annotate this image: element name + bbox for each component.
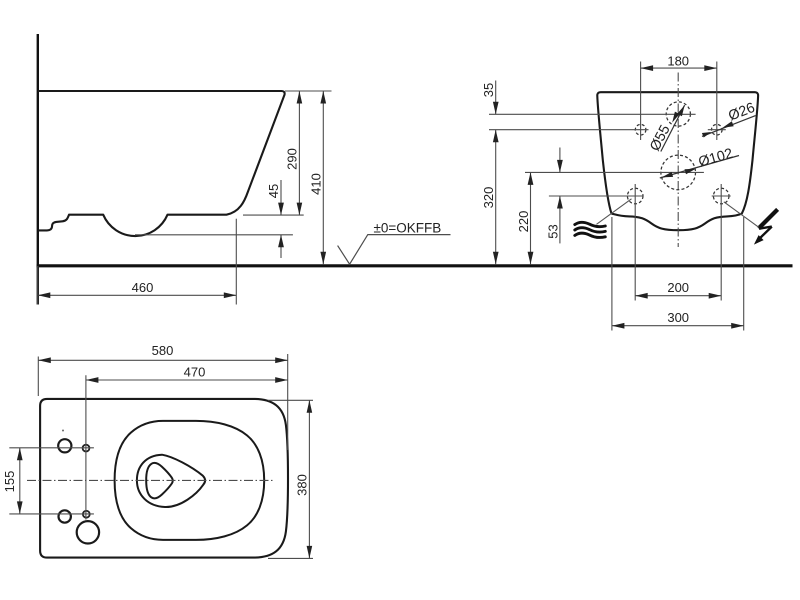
svg-text:410: 410 xyxy=(309,173,324,195)
svg-text:470: 470 xyxy=(184,365,206,380)
svg-text:220: 220 xyxy=(516,211,531,233)
svg-text:45: 45 xyxy=(266,184,281,198)
svg-text:200: 200 xyxy=(667,280,689,295)
svg-text:290: 290 xyxy=(285,148,300,170)
svg-text:±0=OKFFB: ±0=OKFFB xyxy=(374,221,442,236)
svg-text:580: 580 xyxy=(152,343,174,358)
svg-text:380: 380 xyxy=(295,474,310,496)
svg-text:320: 320 xyxy=(481,187,496,209)
svg-text:35: 35 xyxy=(481,83,496,97)
svg-text:180: 180 xyxy=(667,54,689,69)
svg-text:300: 300 xyxy=(667,310,689,325)
svg-text:155: 155 xyxy=(2,471,17,493)
svg-text:460: 460 xyxy=(132,280,154,295)
svg-text:53: 53 xyxy=(545,224,560,238)
